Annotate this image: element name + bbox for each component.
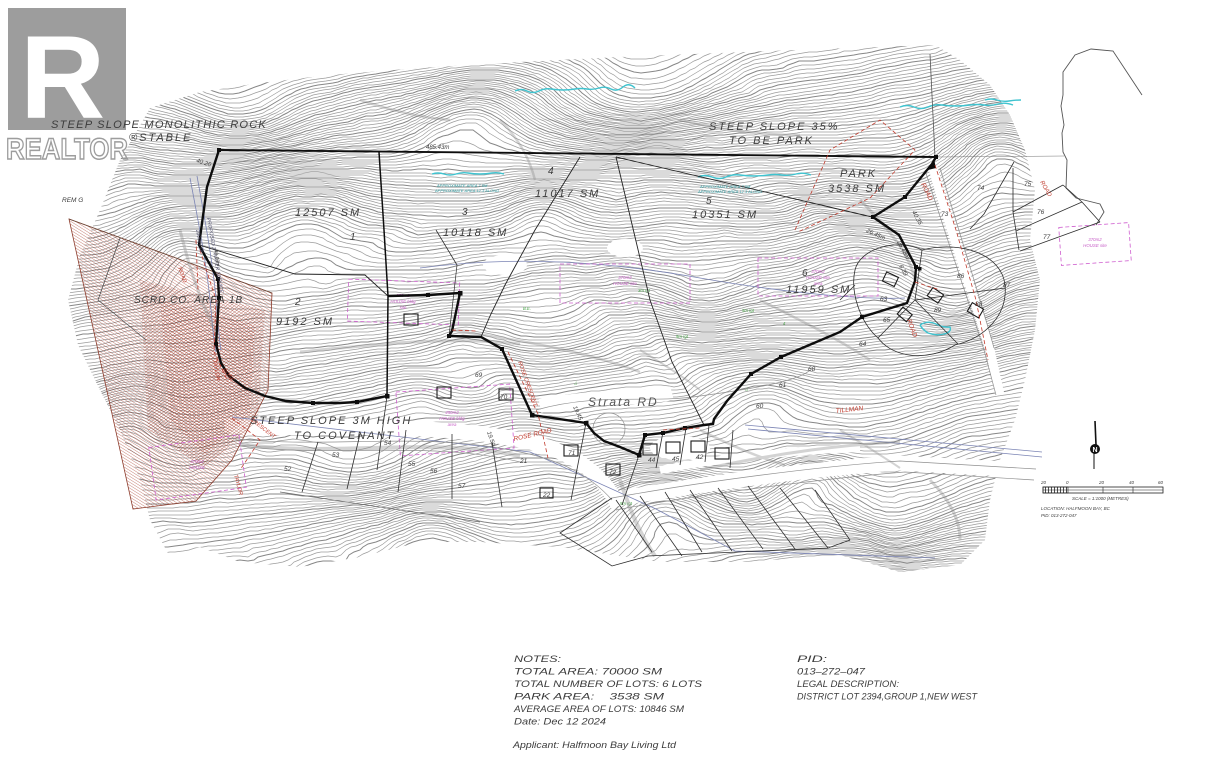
svg-text:73: 73: [941, 211, 949, 218]
svg-text:61: 61: [779, 382, 787, 389]
svg-text:77: 77: [1043, 234, 1051, 241]
svg-text:1: 1: [350, 232, 356, 243]
svg-text:PID:: PID:: [797, 654, 828, 665]
svg-text:70: 70: [500, 394, 508, 401]
svg-text:TILLMAN: TILLMAN: [835, 405, 863, 415]
svg-text:10118 SM: 10118 SM: [443, 227, 508, 239]
svg-text:3538 SM: 3538 SM: [828, 183, 886, 195]
svg-text:87: 87: [1003, 282, 1011, 289]
svg-text:57: 57: [458, 483, 466, 490]
svg-text:PARK: PARK: [840, 168, 877, 180]
svg-text:86: 86: [957, 273, 965, 280]
svg-text:3m rgt: 3m rgt: [638, 288, 651, 293]
svg-text:5m rgt: 5m rgt: [742, 308, 755, 313]
svg-text:REALTOR: REALTOR: [6, 133, 128, 166]
svg-text:APPROXIMATE AREA 12.3 ALONG: APPROXIMATE AREA 12.3 ALONG: [434, 188, 499, 193]
svg-text:APPROXIMATE AREA 12.3 ALONG: APPROXIMATE AREA 12.3 ALONG: [697, 189, 762, 194]
svg-text:TOTAL NUMBER OF LOTS: 6 LOTS: TOTAL NUMBER OF LOTS: 6 LOTS: [514, 679, 703, 690]
svg-text:4: 4: [548, 166, 554, 177]
svg-text:11017 SM: 11017 SM: [535, 188, 600, 200]
svg-text:44: 44: [648, 457, 656, 464]
svg-text:5m rgt: 5m rgt: [676, 334, 689, 339]
svg-text:12507 SM: 12507 SM: [295, 207, 361, 219]
svg-text:10351 SM: 10351 SM: [692, 209, 758, 221]
svg-text:area: area: [448, 422, 457, 427]
svg-text:B.E.: B.E.: [523, 306, 531, 311]
svg-text:69: 69: [475, 372, 483, 379]
svg-text:370m2: 370m2: [618, 275, 632, 280]
svg-text:LOCATION: HALFMOON BAY, BC: LOCATION: HALFMOON BAY, BC: [1041, 506, 1111, 511]
svg-text:HOUSE site: HOUSE site: [1083, 243, 1107, 248]
svg-text:HOUSE bldg: HOUSE bldg: [439, 416, 465, 421]
svg-text:42: 42: [696, 454, 704, 461]
svg-text:N: N: [1092, 447, 1097, 454]
svg-text:63: 63: [880, 296, 888, 303]
svg-text:60: 60: [756, 403, 764, 410]
svg-text:68: 68: [808, 366, 816, 373]
svg-text:370m2: 370m2: [811, 269, 825, 274]
svg-text:STEEP SLOPE MONOLITHIC ROCK: STEEP SLOPE MONOLITHIC ROCK: [51, 119, 267, 131]
svg-text:REM G: REM G: [62, 197, 83, 204]
svg-text:74: 74: [977, 185, 985, 192]
svg-text:site: site: [400, 305, 407, 310]
svg-text:9192 SM: 9192 SM: [276, 316, 334, 328]
svg-text:HOUSE site: HOUSE site: [613, 281, 637, 286]
svg-text:64: 64: [859, 341, 867, 348]
svg-text:STEEP SLOPE 35%: STEEP SLOPE 35%: [709, 121, 839, 133]
svg-text:PARK AREA: 3538 SM: PARK AREA: 3538 SM: [514, 692, 664, 703]
svg-text:2: 2: [294, 297, 301, 308]
svg-text:22: 22: [542, 492, 551, 499]
svg-text:LEGAL DESCRIPTION:: LEGAL DESCRIPTION:: [797, 679, 899, 690]
svg-text:3: 3: [462, 207, 468, 218]
svg-text:20: 20: [1098, 480, 1105, 485]
svg-text:54: 54: [384, 440, 392, 447]
svg-text:AVERAGE AREA OF LOTS: 10846 SM: AVERAGE AREA OF LOTS: 10846 SM: [513, 704, 684, 715]
svg-text:0: 0: [1066, 480, 1069, 485]
svg-text:52: 52: [284, 466, 292, 473]
svg-text:®STABLE: ®STABLE: [129, 132, 192, 144]
svg-text:26.45m: 26.45m: [864, 228, 886, 242]
svg-text:TO COVENANT: TO COVENANT: [294, 430, 395, 442]
svg-text:65: 65: [883, 317, 891, 324]
svg-text:72: 72: [609, 469, 617, 476]
svg-text:Date: Dec 12 2024: Date: Dec 12 2024: [514, 717, 606, 728]
svg-text:370m2: 370m2: [190, 459, 204, 464]
svg-text:6: 6: [802, 268, 808, 279]
svg-text:Applicant: Halfmoon Bay Living: Applicant: Halfmoon Bay Living Ltd: [512, 740, 677, 751]
svg-text:HOUSE site: HOUSE site: [806, 275, 830, 280]
svg-text:75: 75: [1024, 181, 1032, 188]
svg-text:TOTAL AREA: 70000 SM: TOTAL AREA: 70000 SM: [514, 667, 662, 678]
svg-text:485.43m: 485.43m: [426, 145, 449, 151]
svg-text:56: 56: [430, 468, 438, 475]
svg-text:5: 5: [706, 196, 712, 207]
svg-text:HOUSE bldg: HOUSE bldg: [390, 299, 416, 304]
svg-text:△: △: [573, 380, 578, 385]
svg-text:71: 71: [568, 450, 576, 457]
svg-text:PID: 013-272-047: PID: 013-272-047: [1041, 513, 1077, 518]
svg-text:HOUSE: HOUSE: [189, 465, 205, 470]
svg-text:SCALE = 1:1000 (METRES): SCALE = 1:1000 (METRES): [1072, 496, 1129, 501]
svg-text:ROAD: ROAD: [905, 318, 918, 338]
svg-text:55: 55: [408, 461, 416, 468]
svg-text:40: 40: [1129, 480, 1135, 485]
svg-text:53: 53: [332, 452, 340, 459]
svg-text:45: 45: [672, 456, 680, 463]
svg-text:19.45: 19.45: [571, 405, 583, 422]
svg-text:ROAD: ROAD: [1038, 180, 1052, 199]
svg-text:370m2: 370m2: [1088, 237, 1102, 242]
svg-text:SCRD CO. AREA 1B: SCRD CO. AREA 1B: [134, 295, 243, 306]
svg-text:450m2: 450m2: [445, 410, 459, 415]
svg-text:STEEP SLOPE 3M HIGH: STEEP SLOPE 3M HIGH: [250, 415, 412, 427]
svg-text:TO BE PARK: TO BE PARK: [729, 135, 814, 147]
svg-text:21: 21: [519, 458, 528, 465]
svg-text:Strata RD: Strata RD: [588, 395, 659, 409]
svg-text:NOTES:: NOTES:: [514, 654, 561, 665]
svg-text:DISTRICT LOT 2394,GROUP 1,NEW: DISTRICT LOT 2394,GROUP 1,NEW WEST: [797, 692, 978, 703]
svg-text:60: 60: [1158, 480, 1164, 485]
svg-text:11959 SM: 11959 SM: [786, 284, 851, 296]
svg-text:013–272–047: 013–272–047: [797, 667, 866, 678]
svg-text:88: 88: [975, 301, 983, 308]
svg-text:76: 76: [1037, 209, 1045, 216]
svg-text:20: 20: [1040, 480, 1047, 485]
svg-text:89: 89: [934, 307, 942, 314]
svg-text:40.35: 40.35: [910, 210, 923, 227]
